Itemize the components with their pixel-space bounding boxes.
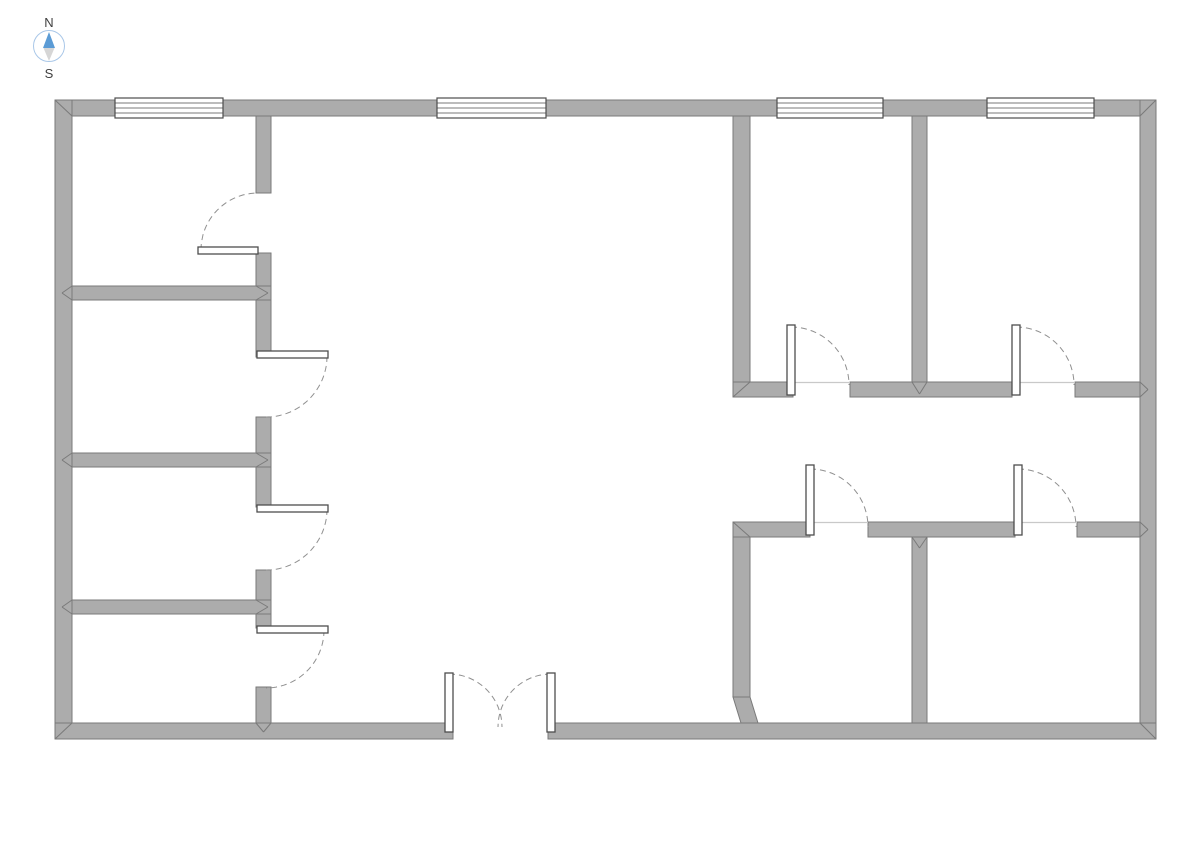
wall-se-room-wall-west [733,537,750,697]
wall-left-corridor-wall-seg1 [256,116,271,193]
door-leaves-layer [198,247,1022,732]
floor-plan: N S [0,0,1191,842]
room3-door-arc [266,509,327,570]
room4-door-arc [266,630,324,688]
wall-se-partition-seg1 [733,522,810,537]
wall-se-partition-seg3 [1077,522,1140,537]
wall-left-corridor-wall-seg5 [256,687,271,723]
wall-left-partition-1 [72,286,271,300]
wall-ne-partition-seg2 [850,382,1012,397]
north-label: N [44,15,53,30]
wall-ne-partition-seg3 [1075,382,1140,397]
wall-left-corridor-wall-seg4 [256,570,271,628]
south-arrow-icon [44,48,55,61]
wall-left-partition-3 [72,600,271,614]
room1-door-arc [201,193,258,250]
wall-exterior-left [55,100,72,739]
room8-door-arc [1018,469,1076,527]
room2-door-leaf [257,351,328,358]
room4-door-leaf [257,626,328,633]
wall-left-partition-2 [72,453,271,467]
entrance-left-arc [449,674,502,727]
entrance-right-arc [498,674,551,727]
wall-exterior-bottom-east [548,723,1156,739]
room6-door-arc [1016,327,1074,385]
room7-door-arc [810,469,868,527]
wall-se-room-wall-mid [912,537,927,723]
wall-se-wall-jog [733,697,758,723]
south-label: S [45,66,54,81]
wall-ne-room-wall-mid [912,116,927,382]
room7-door-leaf [806,465,814,535]
wall-se-partition-seg2 [868,522,1015,537]
room5-door-leaf [787,325,795,395]
room3-door-leaf [257,505,328,512]
north-arrow-icon [43,32,55,48]
walls-layer [55,100,1156,739]
room2-door-arc [266,356,327,417]
entrance-left-leaf [445,673,453,732]
room1-door-leaf [198,247,258,254]
room8-door-leaf [1014,465,1022,535]
wall-left-corridor-wall-seg2 [256,253,271,357]
door-swing-arcs-layer [201,193,1076,727]
compass: N S [34,15,65,81]
room5-door-arc [791,327,849,385]
room6-door-leaf [1012,325,1020,395]
door-thresholds-layer [793,383,1077,523]
wall-ne-room-wall-west [733,116,750,382]
wall-exterior-right [1140,100,1156,739]
wall-miters-layer [55,100,1156,739]
entrance-right-leaf [547,673,555,732]
wall-exterior-bottom-west [55,723,453,739]
